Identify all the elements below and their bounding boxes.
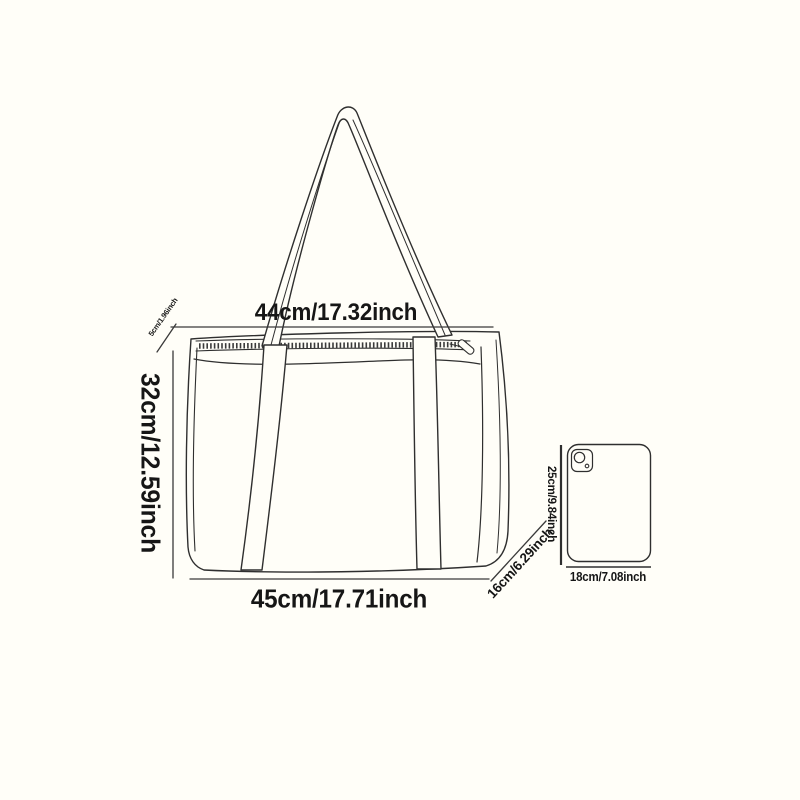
- bag-bottom-width-label: 45cm/17.71inch: [251, 584, 427, 615]
- bag-top-width-label: 44cm/17.32inch: [255, 299, 417, 327]
- product-dimension-diagram: 44cm/17.32inch 32cm/12.59inch 45cm/17.71…: [0, 0, 800, 800]
- tablet-body-outline: [568, 445, 651, 562]
- tablet-height-label: 25cm/9.84inch: [545, 466, 557, 542]
- tablet-width-label: 18cm/7.08inch: [570, 570, 646, 584]
- bag-strap-right: [413, 337, 441, 569]
- tablet-drawing: [568, 445, 651, 562]
- bag-height-label: 32cm/12.59inch: [135, 373, 166, 553]
- line-art: [0, 0, 800, 800]
- tote-bag-drawing: [186, 107, 509, 572]
- bag-body-outline: [186, 331, 509, 572]
